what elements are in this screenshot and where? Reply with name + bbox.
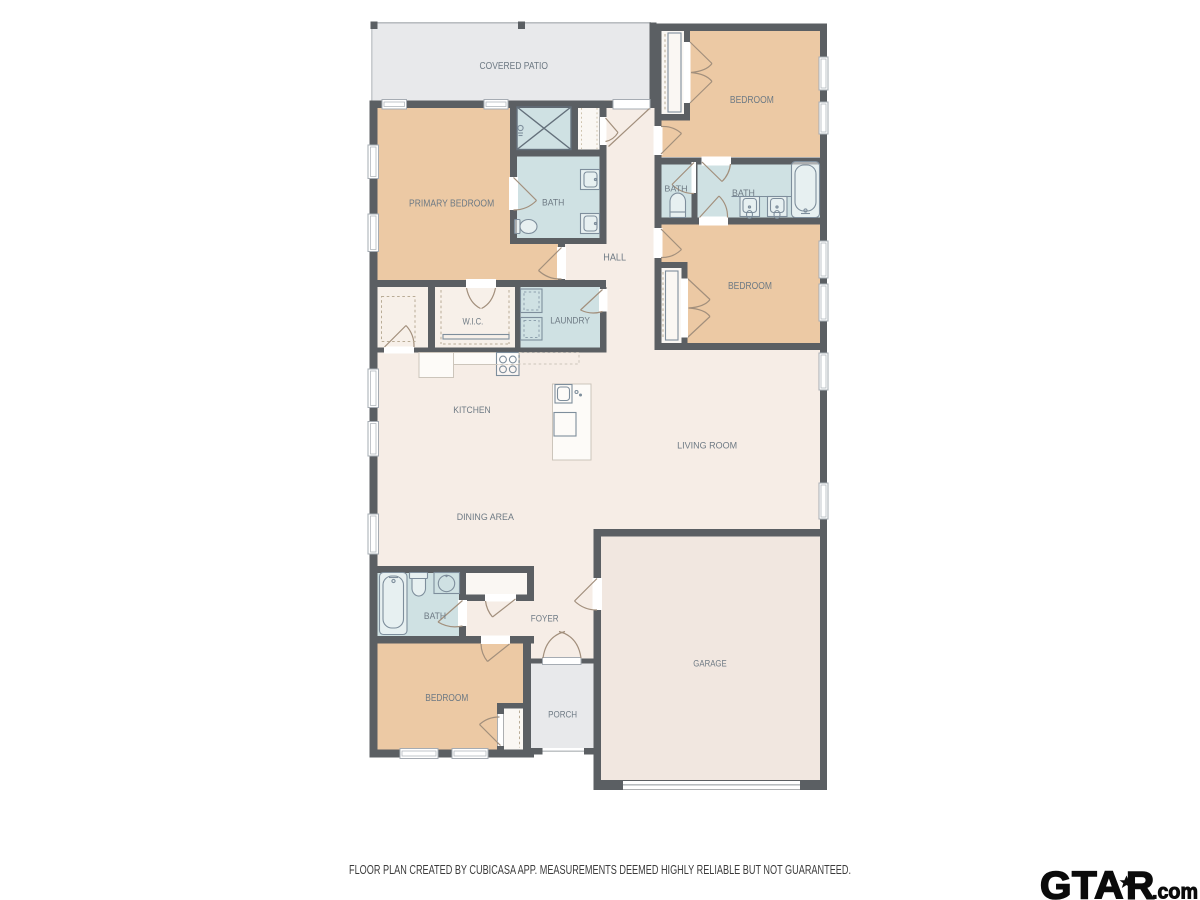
svg-text:.com: .com bbox=[1152, 881, 1198, 900]
svg-text:FOYER: FOYER bbox=[531, 614, 559, 625]
svg-text:BEDROOM: BEDROOM bbox=[730, 95, 774, 106]
svg-text:GARAGE: GARAGE bbox=[693, 658, 726, 669]
svg-text:LIVING ROOM: LIVING ROOM bbox=[677, 440, 737, 451]
svg-text:BATH: BATH bbox=[664, 183, 687, 193]
svg-text:FLOOR PLAN CREATED BY CUBICASA: FLOOR PLAN CREATED BY CUBICASA APP. MEAS… bbox=[349, 862, 851, 877]
svg-text:BATH: BATH bbox=[542, 197, 564, 208]
svg-text:KITCHEN: KITCHEN bbox=[453, 405, 491, 416]
svg-text:BATH: BATH bbox=[424, 611, 446, 622]
svg-text:BEDROOM: BEDROOM bbox=[425, 693, 468, 704]
svg-text:PRIMARY BEDROOM: PRIMARY BEDROOM bbox=[409, 199, 494, 210]
svg-text:LAUNDRY: LAUNDRY bbox=[550, 315, 590, 325]
svg-text:W.I.C.: W.I.C. bbox=[463, 317, 484, 328]
svg-text:GTA: GTA bbox=[1040, 865, 1124, 900]
svg-text:HALL: HALL bbox=[603, 253, 626, 264]
svg-text:BEDROOM: BEDROOM bbox=[728, 281, 772, 292]
svg-text:DINING AREA: DINING AREA bbox=[457, 512, 515, 523]
svg-text:COVERED PATIO: COVERED PATIO bbox=[480, 61, 549, 72]
svg-text:BATH: BATH bbox=[732, 188, 755, 199]
svg-text:PORCH: PORCH bbox=[548, 710, 577, 721]
